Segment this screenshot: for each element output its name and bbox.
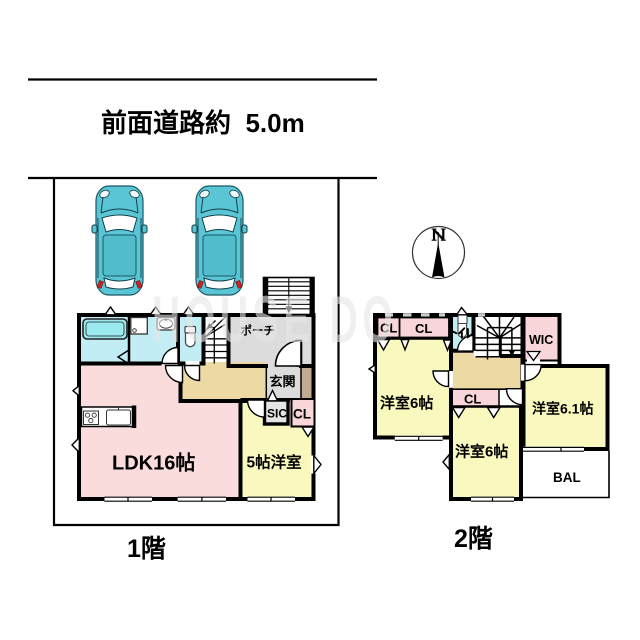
svg-text:1階: 1階 — [127, 535, 166, 563]
svg-text:CL: CL — [293, 407, 311, 422]
svg-text:洋室6.1帖: 洋室6.1帖 — [532, 401, 593, 417]
svg-text:LDK16帖: LDK16帖 — [112, 452, 195, 475]
svg-text:5帖洋室: 5帖洋室 — [247, 453, 302, 472]
svg-text:HOUSE DO: HOUSE DO — [152, 284, 397, 357]
svg-text:洋室6帖: 洋室6帖 — [380, 394, 433, 412]
svg-text:2階: 2階 — [454, 525, 493, 553]
svg-text:CL: CL — [464, 392, 481, 407]
svg-text:WIC: WIC — [529, 333, 553, 347]
svg-text:SIC: SIC — [267, 407, 287, 421]
svg-text:CL: CL — [415, 321, 432, 336]
svg-text:前面道路約 5.0m: 前面道路約 5.0m — [101, 108, 305, 138]
svg-text:洋室6帖: 洋室6帖 — [455, 443, 508, 461]
svg-text:玄関: 玄関 — [270, 374, 296, 389]
svg-text:BAL: BAL — [553, 470, 581, 485]
